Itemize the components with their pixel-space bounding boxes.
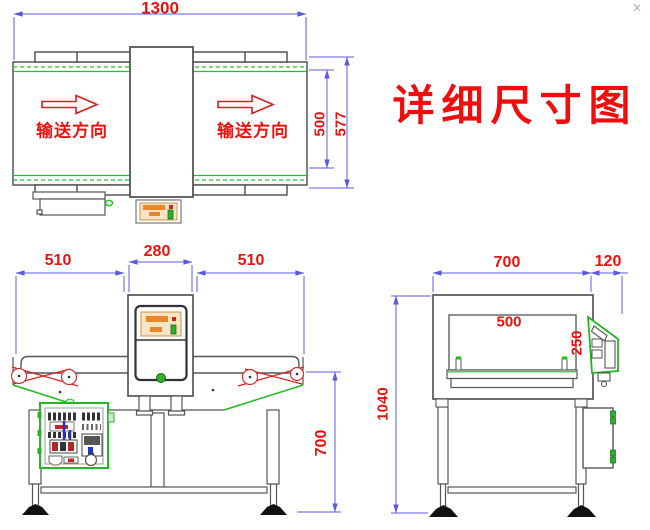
direction-label-right: 输送方向 bbox=[217, 123, 289, 140]
dim-label-total-height: 1040 bbox=[376, 387, 391, 420]
top-view-motor-housing bbox=[33, 192, 113, 215]
direction-label-left: 输送方向 bbox=[36, 123, 108, 140]
dim-label-detector-width: 280 bbox=[144, 244, 171, 260]
dim-label-panel-depth: 120 bbox=[595, 254, 622, 270]
page-title: 详细尺寸图 bbox=[392, 85, 637, 127]
top-view-detector-head bbox=[130, 47, 193, 223]
top-view bbox=[13, 14, 354, 223]
front-view-electrical-cabinet bbox=[38, 399, 115, 468]
side-view-motor-box bbox=[583, 408, 616, 468]
corner-artifact bbox=[634, 4, 640, 11]
dim-label-aperture-height: 250 bbox=[570, 330, 585, 355]
dimension-drawing-page: 1300 500 577 输送方向 输送方向 详细尺寸图 510 280 510… bbox=[0, 0, 650, 530]
side-view bbox=[391, 273, 628, 517]
front-view bbox=[12, 262, 342, 515]
dim-label-total-length: 1300 bbox=[141, 0, 179, 17]
dim-label-machine-depth: 700 bbox=[494, 255, 521, 271]
dim-label-frame-width: 577 bbox=[334, 111, 349, 136]
side-view-stand bbox=[429, 407, 596, 517]
dim-label-belt-height: 700 bbox=[314, 430, 330, 457]
dim-label-aperture-width: 500 bbox=[496, 315, 521, 330]
dim-label-belt-width: 500 bbox=[313, 111, 328, 136]
dim-label-right-section: 510 bbox=[238, 253, 265, 269]
dim-label-left-section: 510 bbox=[45, 253, 72, 269]
front-view-detector-head bbox=[128, 295, 193, 415]
